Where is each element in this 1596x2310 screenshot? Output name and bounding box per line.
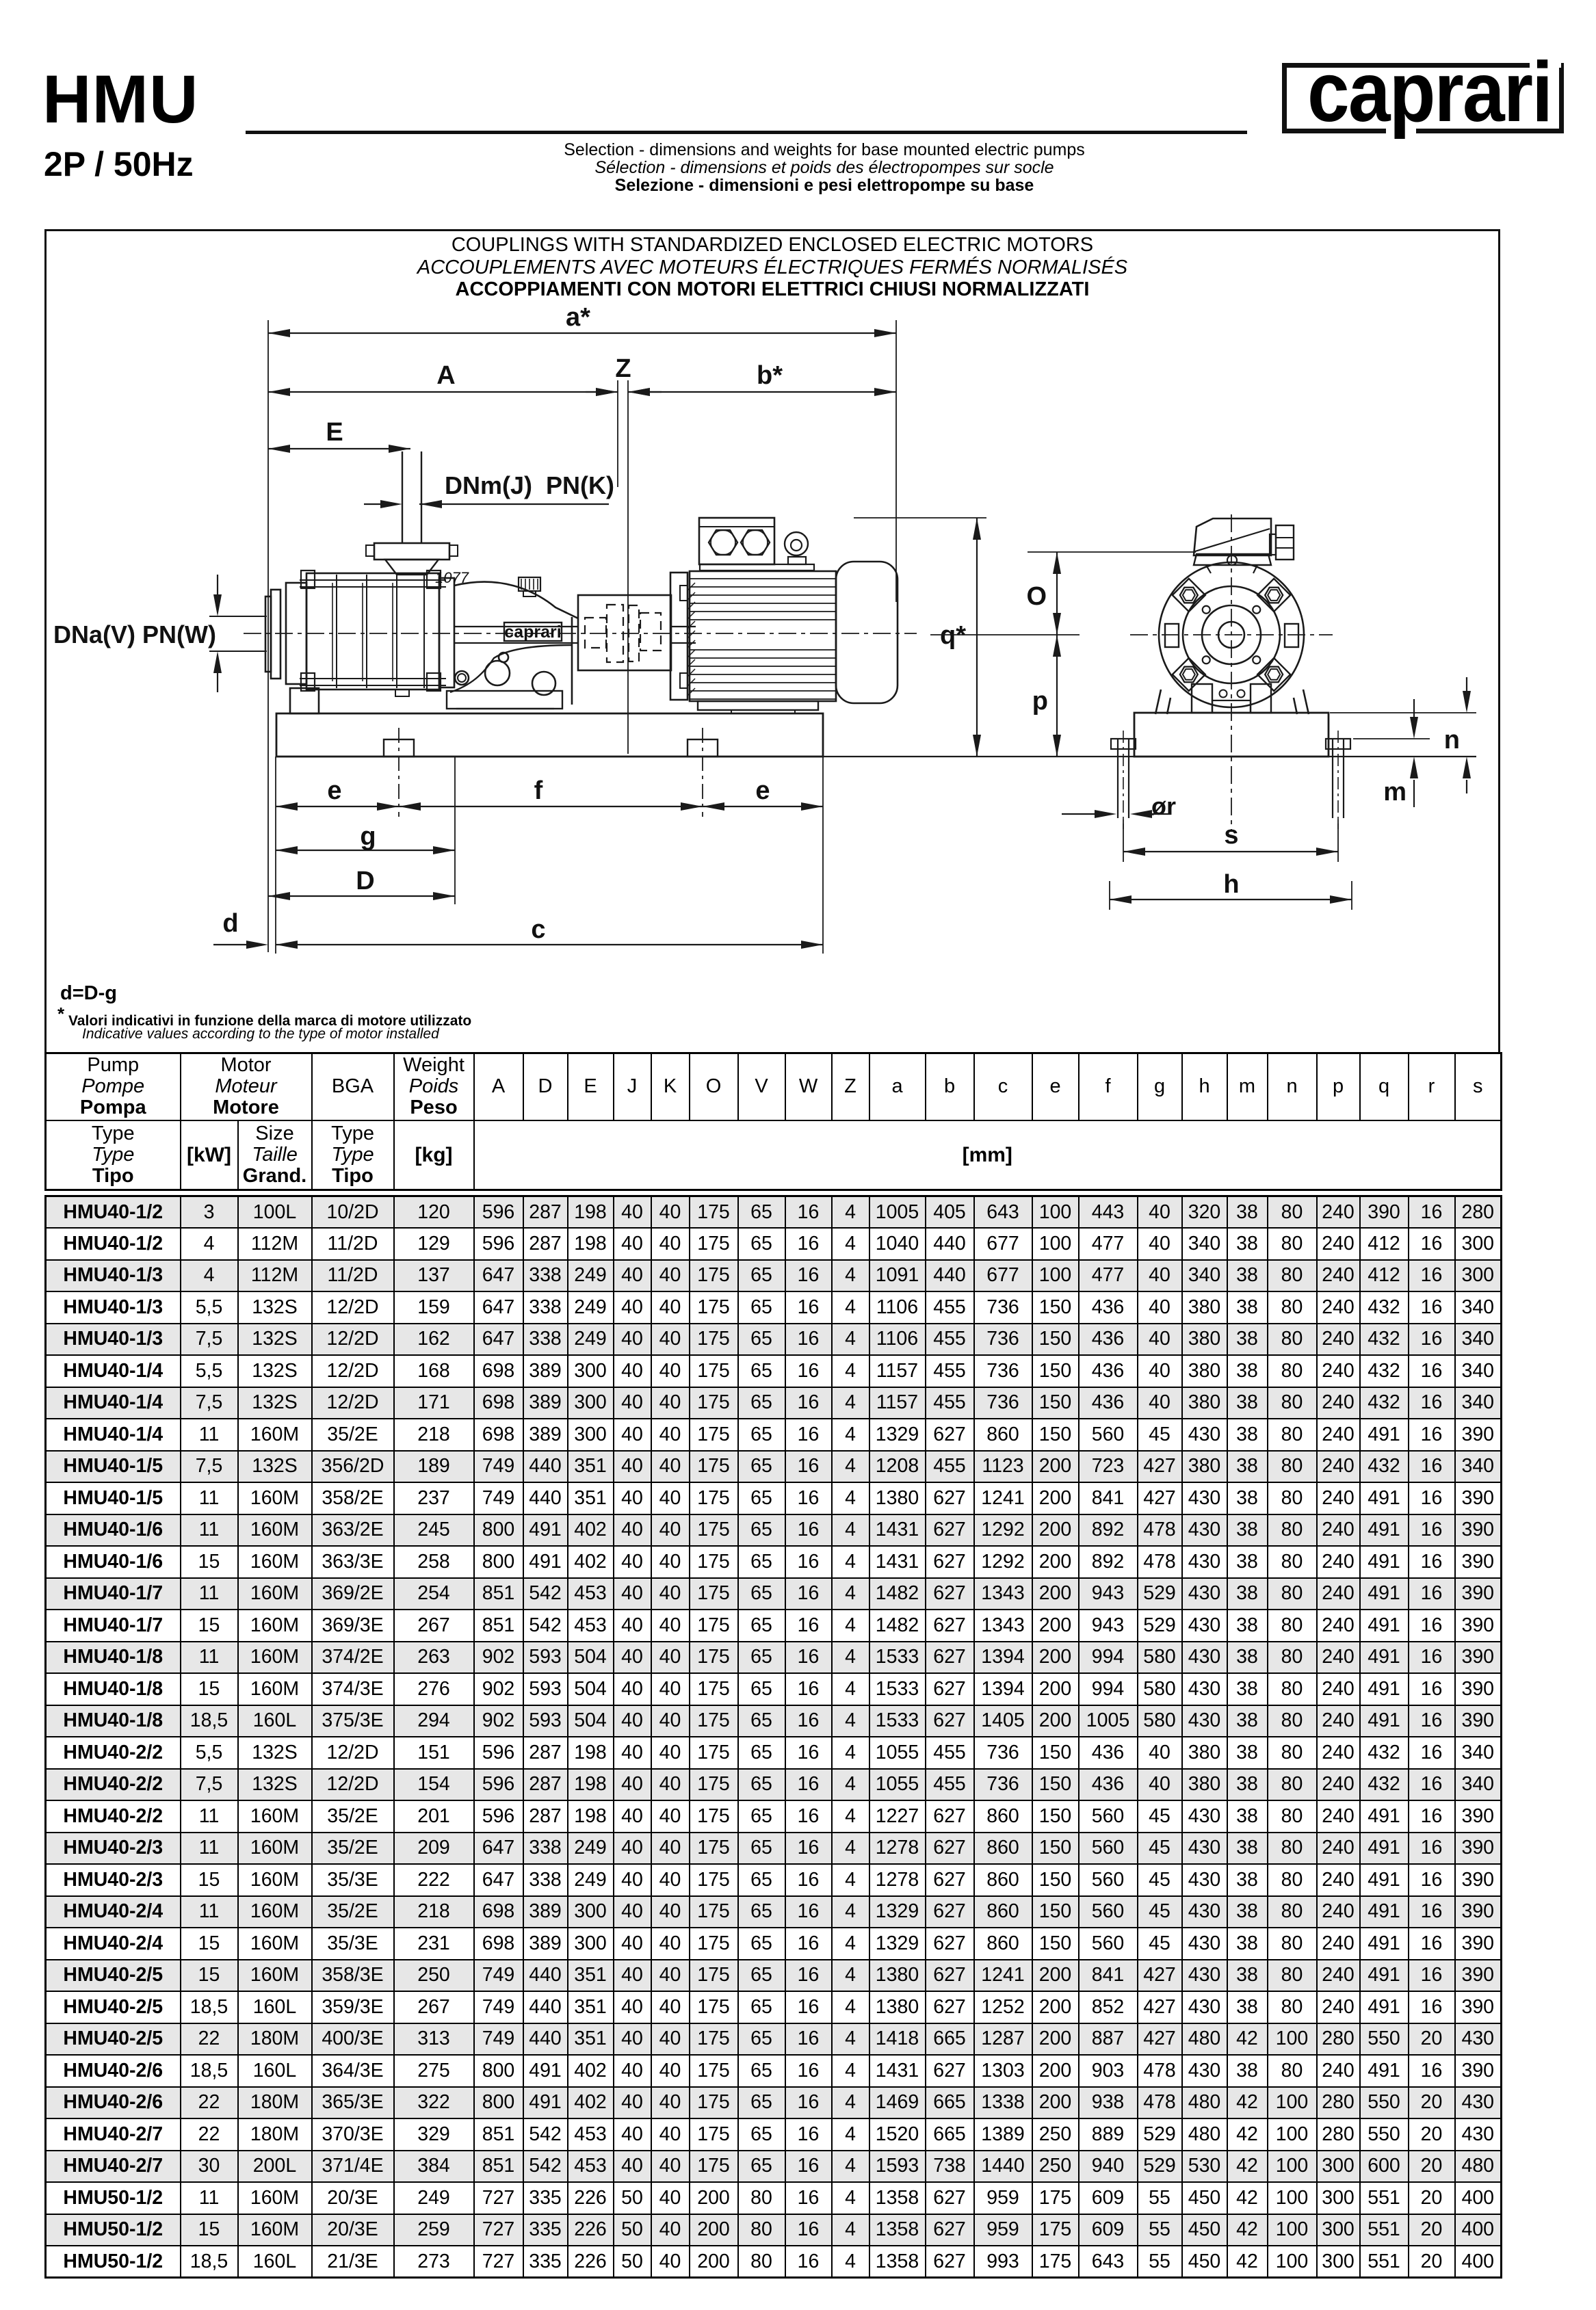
svg-text:DNm(J) PN(K): DNm(J) PN(K) bbox=[445, 471, 614, 499]
svg-text:A: A bbox=[436, 361, 455, 390]
svg-text:h: h bbox=[1223, 870, 1239, 899]
svg-text:a*: a* bbox=[566, 303, 590, 332]
svg-text:d: d bbox=[222, 909, 238, 938]
svg-text:p: p bbox=[1032, 687, 1048, 716]
svg-text:m: m bbox=[1383, 778, 1407, 806]
svg-text:n: n bbox=[1444, 726, 1460, 754]
svg-text:Z: Z bbox=[615, 354, 631, 383]
svg-text:g: g bbox=[360, 822, 376, 851]
svg-text:e: e bbox=[327, 776, 341, 805]
svg-text:caprari: caprari bbox=[504, 622, 561, 642]
svg-text:b*: b* bbox=[757, 361, 783, 390]
svg-text:D: D bbox=[356, 867, 374, 895]
svg-text:O: O bbox=[1026, 582, 1047, 611]
svg-text:DNa(V) PN(W): DNa(V) PN(W) bbox=[53, 620, 216, 648]
svg-text:f: f bbox=[534, 776, 543, 805]
svg-text:s: s bbox=[1224, 821, 1238, 850]
svg-text:E: E bbox=[326, 418, 343, 447]
svg-text:q*: q* bbox=[940, 621, 966, 650]
svg-text:c: c bbox=[531, 915, 545, 944]
svg-text:ør: ør bbox=[1151, 792, 1176, 820]
svg-text:e: e bbox=[755, 776, 770, 805]
